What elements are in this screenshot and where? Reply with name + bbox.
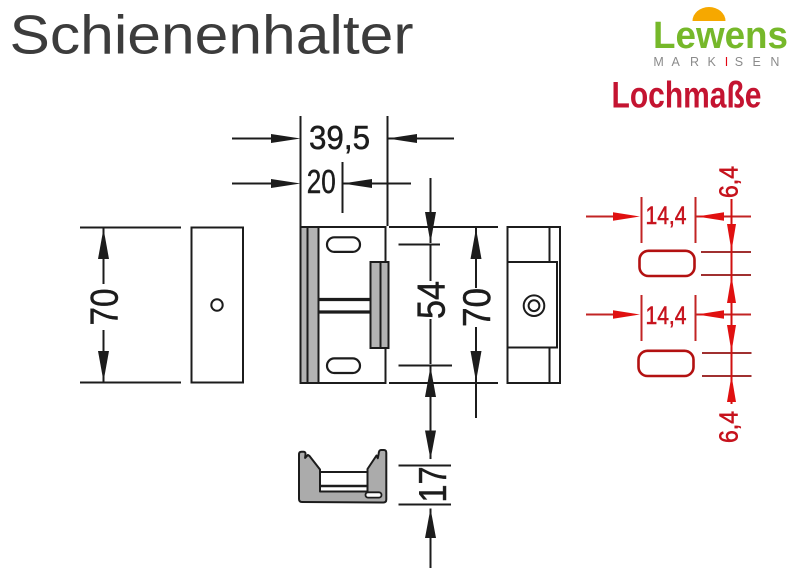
svg-text:14,4: 14,4 xyxy=(646,302,687,330)
svg-text:70: 70 xyxy=(83,289,126,326)
svg-text:Lochmaße: Lochmaße xyxy=(612,75,762,116)
svg-text:Lewens: Lewens xyxy=(653,15,788,57)
svg-text:17: 17 xyxy=(412,467,455,503)
svg-text:39,5: 39,5 xyxy=(309,120,370,157)
svg-text:70: 70 xyxy=(456,288,499,327)
svg-text:6,4: 6,4 xyxy=(714,411,744,443)
svg-text:54: 54 xyxy=(410,281,453,319)
svg-text:14,4: 14,4 xyxy=(646,202,687,230)
svg-text:6,4: 6,4 xyxy=(714,166,744,198)
svg-text:Schienenhalter: Schienenhalter xyxy=(10,4,414,66)
svg-text:20: 20 xyxy=(307,163,336,200)
